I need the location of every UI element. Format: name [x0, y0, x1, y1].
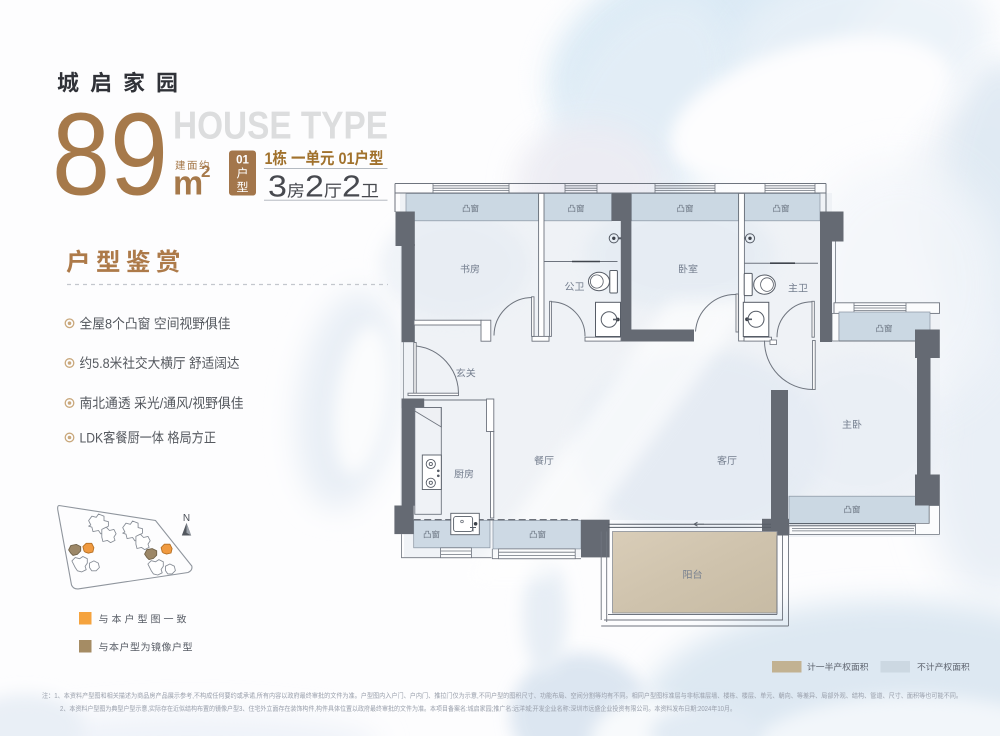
svg-text:2: 2 [201, 162, 210, 181]
svg-text:凸窗: 凸窗 [843, 505, 860, 515]
svg-text:南北通透 采光/通风/视野俱佳: 南北通透 采光/通风/视野俱佳 [80, 395, 244, 411]
svg-text:型: 型 [236, 181, 248, 195]
svg-text:全屋8个凸窗 空间视野俱佳: 全屋8个凸窗 空间视野俱佳 [80, 315, 231, 331]
svg-text:卧室: 卧室 [678, 264, 698, 276]
svg-text:注：1、本资料产型图和相关描述为商品房产品展示参考,不构成任: 注：1、本资料产型图和相关描述为商品房产品展示参考,不构成任何要约或承诺,所有内… [42, 692, 962, 700]
svg-text:餐厅: 餐厅 [534, 455, 554, 467]
svg-text:凸窗: 凸窗 [772, 204, 789, 214]
svg-text:01: 01 [236, 155, 249, 167]
svg-text:凸窗: 凸窗 [462, 204, 479, 214]
svg-text:计一半产权面积: 计一半产权面积 [807, 662, 869, 672]
svg-text:凸窗: 凸窗 [423, 530, 440, 540]
svg-text:N: N [183, 513, 190, 524]
svg-text:m: m [173, 165, 203, 203]
svg-text:阳台: 阳台 [683, 569, 703, 581]
svg-text:89: 89 [52, 89, 168, 220]
svg-text:2、本资料户型图为典型户型示意,实际存在近似结构布置的镜像户: 2、本资料户型图为典型户型示意,实际存在近似结构布置的镜像户型3、住宅外立面存在… [60, 705, 736, 713]
svg-text:厨房: 厨房 [454, 469, 474, 481]
svg-text:户: 户 [236, 167, 248, 181]
svg-text:与本户型图一致: 与本户型图一致 [99, 614, 190, 626]
svg-text:凸窗: 凸窗 [529, 530, 546, 540]
svg-text:凸窗: 凸窗 [676, 204, 693, 214]
svg-text:凸窗: 凸窗 [567, 204, 584, 214]
svg-text:主卧: 主卧 [842, 419, 862, 431]
svg-text:不计产权面积: 不计产权面积 [917, 662, 970, 672]
svg-text:约5.8米社交大横厅 舒适阔达: 约5.8米社交大横厅 舒适阔达 [80, 355, 240, 371]
svg-text:主卫: 主卫 [788, 283, 808, 295]
svg-text:1栋 一单元 01户型: 1栋 一单元 01户型 [265, 149, 384, 168]
svg-text:玄关: 玄关 [456, 368, 476, 380]
svg-text:书房: 书房 [460, 264, 480, 276]
svg-text:HOUSE TYPE: HOUSE TYPE [173, 105, 388, 148]
svg-text:LDK客餐厨一体 格局方正: LDK客餐厨一体 格局方正 [80, 430, 217, 446]
svg-text:公卫: 公卫 [565, 281, 585, 293]
svg-text:户型鉴赏: 户型鉴赏 [66, 249, 186, 277]
svg-text:与本户型为镜像户型: 与本户型为镜像户型 [99, 642, 194, 654]
svg-text:客厅: 客厅 [717, 455, 737, 467]
svg-text:凸窗: 凸窗 [875, 324, 892, 334]
